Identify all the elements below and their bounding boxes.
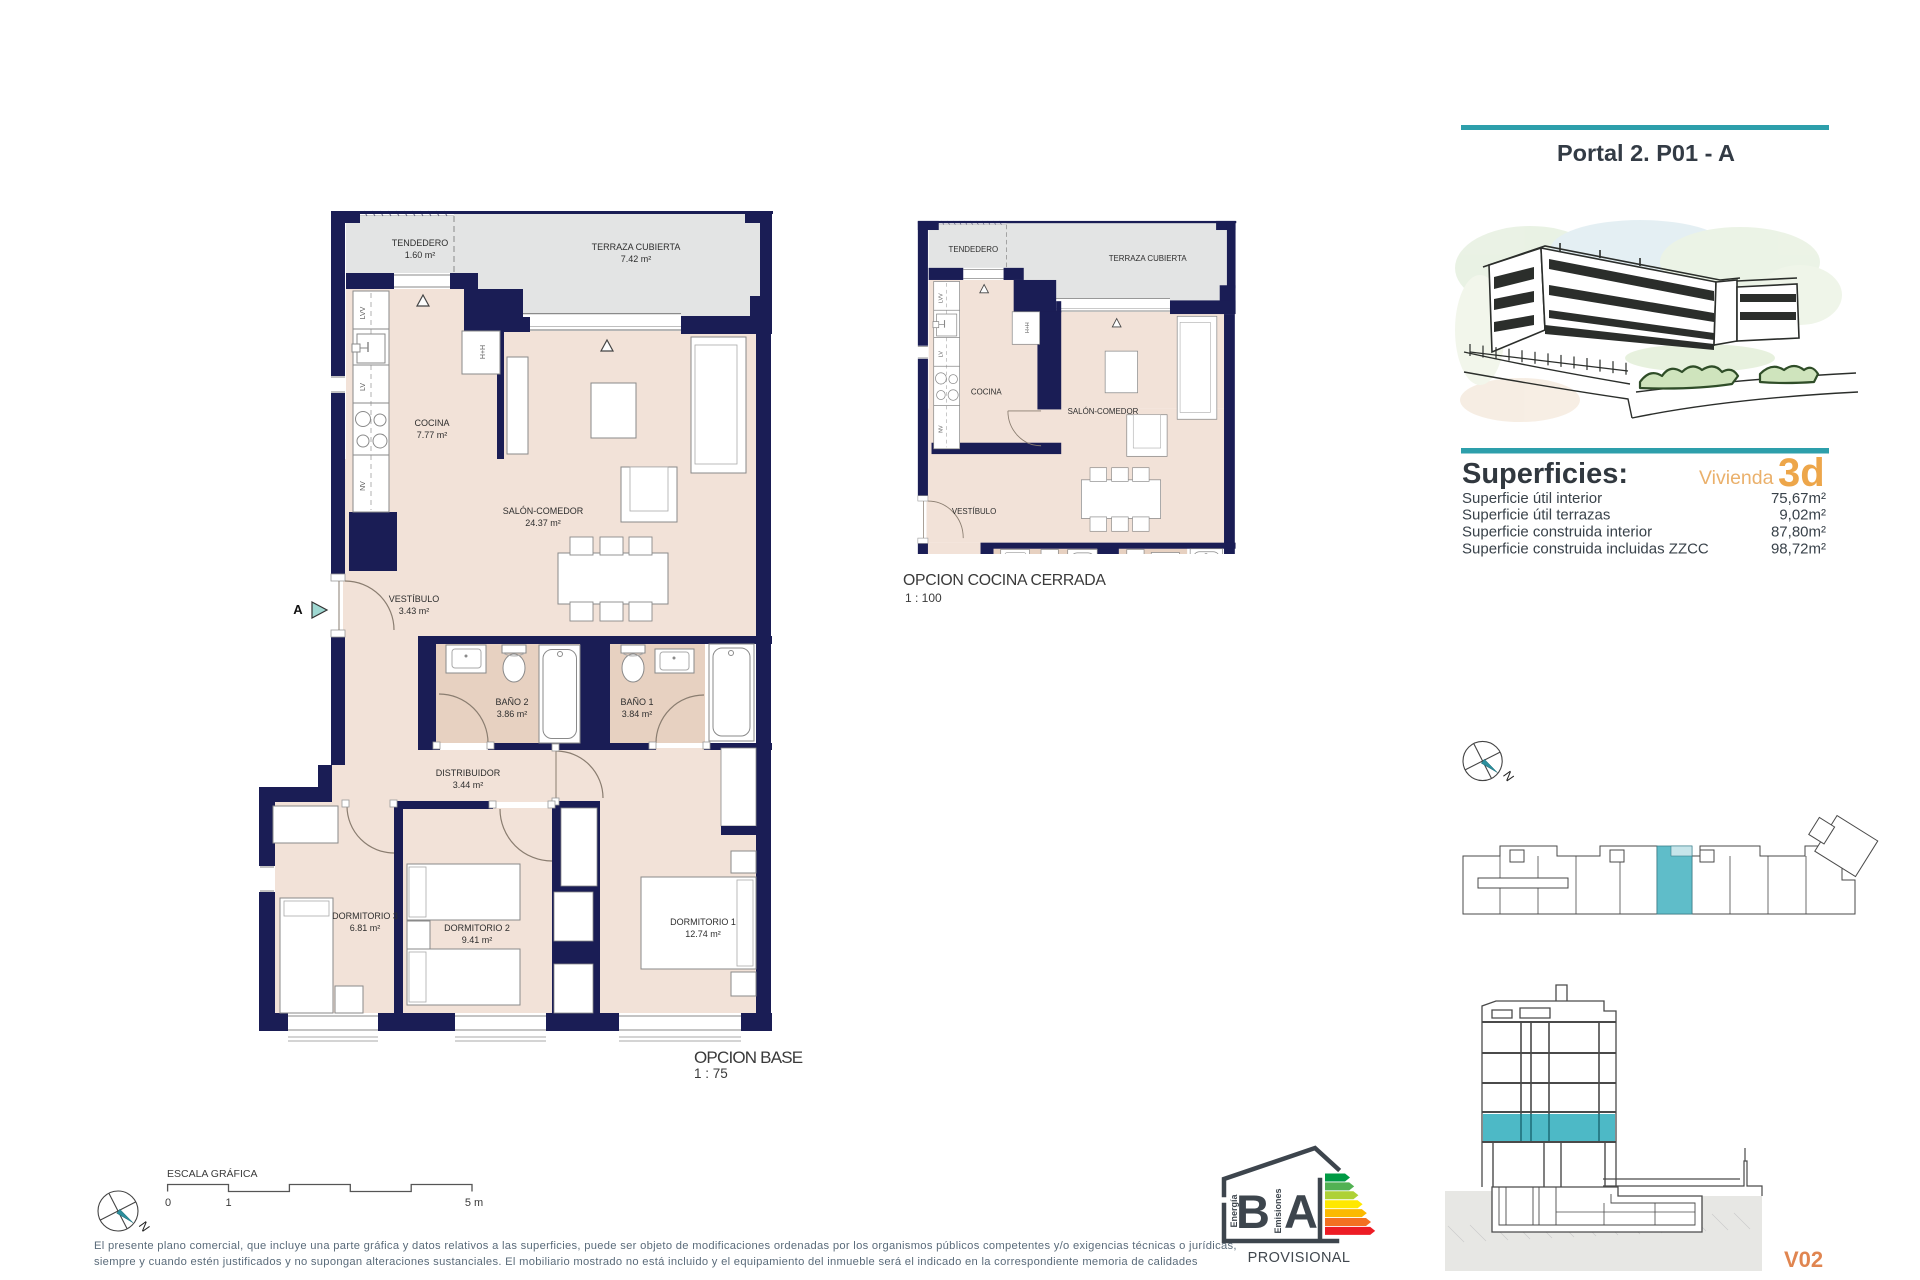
- svg-text:1 : 75: 1 : 75: [694, 1066, 728, 1081]
- svg-text:ESCALA GRÁFICA: ESCALA GRÁFICA: [167, 1167, 257, 1180]
- svg-text:A: A: [293, 602, 303, 617]
- svg-text:LVV: LVV: [938, 293, 944, 303]
- svg-text:SALÓN-COMEDOR: SALÓN-COMEDOR: [1068, 407, 1139, 416]
- svg-text:3.86 m²: 3.86 m²: [497, 709, 528, 719]
- svg-text:3.43 m²: 3.43 m²: [399, 606, 430, 616]
- svg-text:5 m: 5 m: [465, 1197, 483, 1209]
- svg-text:Vivienda: Vivienda: [1699, 467, 1774, 489]
- svg-text:7.77 m²: 7.77 m²: [417, 430, 448, 440]
- svg-text:El presente plano comercial, q: El presente plano comercial, que incluye…: [94, 1240, 1237, 1252]
- svg-text:3d: 3d: [1778, 451, 1825, 495]
- svg-text:Emisiones: Emisiones: [1273, 1188, 1283, 1233]
- svg-text:Superficie construida incluida: Superficie construida incluidas ZZCC: [1462, 541, 1709, 558]
- svg-text:B: B: [1236, 1185, 1270, 1238]
- svg-text:LV: LV: [938, 351, 944, 358]
- svg-text:Superficie construida interior: Superficie construida interior: [1462, 524, 1652, 541]
- svg-text:NV: NV: [360, 481, 367, 491]
- svg-text:24.37 m²: 24.37 m²: [525, 518, 561, 528]
- svg-text:1: 1: [225, 1197, 231, 1209]
- svg-text:DORMITORIO 2: DORMITORIO 2: [444, 923, 510, 933]
- svg-text:3.84 m²: 3.84 m²: [622, 709, 653, 719]
- svg-text:Portal 2. P01 - A: Portal 2. P01 - A: [1557, 140, 1735, 166]
- svg-text:0: 0: [165, 1197, 171, 1209]
- svg-text:1.60 m²: 1.60 m²: [405, 250, 436, 260]
- svg-text:PROVISIONAL: PROVISIONAL: [1248, 1250, 1351, 1266]
- svg-text:7.42 m²: 7.42 m²: [621, 254, 652, 264]
- svg-text:OPCION COCINA CERRADA: OPCION COCINA CERRADA: [903, 572, 1106, 589]
- svg-text:3.44 m²: 3.44 m²: [453, 780, 484, 790]
- svg-text:H+H: H+H: [1025, 322, 1031, 333]
- svg-text:6.81 m²: 6.81 m²: [350, 923, 381, 933]
- svg-text:DORMITORIO 3: DORMITORIO 3: [332, 911, 398, 921]
- svg-text:LV: LV: [360, 383, 367, 391]
- svg-text:1 : 100: 1 : 100: [905, 591, 942, 605]
- svg-text:siempre y cuando estén justifi: siempre y cuando estén justificados y no…: [94, 1256, 1198, 1268]
- svg-text:NV: NV: [938, 425, 944, 433]
- svg-text:87,80m²: 87,80m²: [1771, 524, 1826, 541]
- svg-text:COCINA: COCINA: [414, 418, 449, 428]
- svg-text:9,02m²: 9,02m²: [1779, 507, 1826, 524]
- svg-text:OPCION BASE: OPCION BASE: [694, 1048, 803, 1067]
- svg-text:12.74 m²: 12.74 m²: [685, 929, 721, 939]
- svg-text:LVV: LVV: [360, 306, 367, 319]
- svg-text:SALÓN-COMEDOR: SALÓN-COMEDOR: [503, 506, 584, 516]
- svg-text:COCINA: COCINA: [971, 387, 1002, 396]
- svg-text:Energía: Energía: [1229, 1194, 1239, 1228]
- svg-text:98,72m²: 98,72m²: [1771, 541, 1826, 558]
- svg-text:VESTÍBULO: VESTÍBULO: [952, 507, 996, 516]
- svg-text:Superficie útil interior: Superficie útil interior: [1462, 490, 1602, 507]
- svg-text:TENDEDERO: TENDEDERO: [392, 238, 449, 248]
- svg-text:DORMITORIO 1: DORMITORIO 1: [670, 917, 736, 927]
- svg-text:H+H: H+H: [480, 345, 487, 359]
- svg-text:75,67m²: 75,67m²: [1771, 490, 1826, 507]
- svg-text:BAÑO 1: BAÑO 1: [620, 697, 653, 707]
- svg-text:Superficies:: Superficies:: [1462, 458, 1628, 490]
- svg-text:9.41 m²: 9.41 m²: [462, 935, 493, 945]
- svg-text:VESTÍBULO: VESTÍBULO: [389, 594, 440, 604]
- svg-text:BAÑO 2: BAÑO 2: [495, 697, 528, 707]
- svg-text:TERRAZA CUBIERTA: TERRAZA CUBIERTA: [592, 242, 681, 252]
- svg-text:DISTRIBUIDOR: DISTRIBUIDOR: [436, 768, 501, 778]
- svg-text:Superficie útil terrazas: Superficie útil terrazas: [1462, 507, 1610, 524]
- svg-text:A: A: [1284, 1185, 1318, 1238]
- svg-text:TENDEDERO: TENDEDERO: [949, 245, 999, 254]
- svg-text:V02: V02: [1784, 1247, 1823, 1272]
- svg-text:TERRAZA CUBIERTA: TERRAZA CUBIERTA: [1109, 254, 1187, 263]
